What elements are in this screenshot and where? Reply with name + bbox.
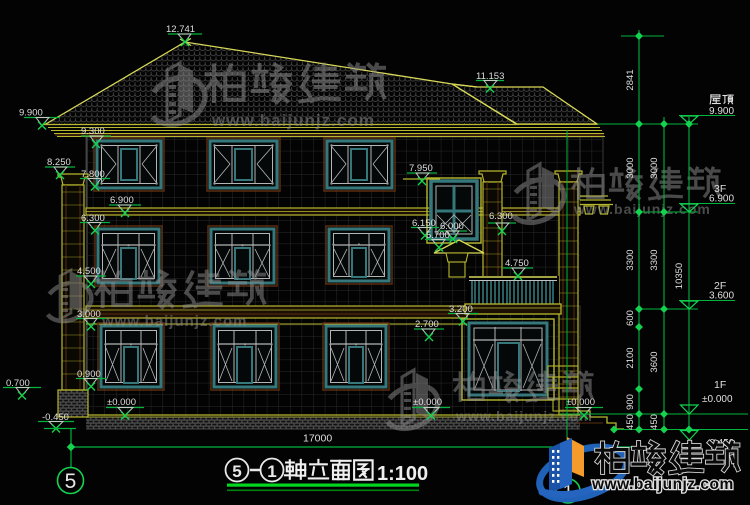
svg-text:1F: 1F xyxy=(714,379,726,391)
svg-text:6.300: 6.300 xyxy=(489,211,513,222)
svg-text:www.baijunjz.com: www.baijunjz.com xyxy=(211,111,375,130)
svg-text:2841: 2841 xyxy=(625,69,636,90)
svg-text:3300: 3300 xyxy=(649,249,660,270)
svg-text:2100: 2100 xyxy=(625,347,636,368)
svg-text:±0.000: ±0.000 xyxy=(702,394,733,405)
svg-text:www.baijunjz.com: www.baijunjz.com xyxy=(591,476,734,493)
svg-text:5: 5 xyxy=(232,462,241,481)
svg-text:3300: 3300 xyxy=(625,249,636,270)
svg-text:3000: 3000 xyxy=(649,157,660,178)
svg-text:1: 1 xyxy=(267,462,276,481)
svg-text:±0.000: ±0.000 xyxy=(107,397,136,408)
svg-text:±0.000: ±0.000 xyxy=(566,397,595,408)
svg-text:3000: 3000 xyxy=(625,157,636,178)
svg-text:450: 450 xyxy=(649,414,660,430)
svg-text:www.baijunjz.com: www.baijunjz.com xyxy=(455,408,593,424)
svg-text:6.900: 6.900 xyxy=(709,194,734,205)
svg-text:17000: 17000 xyxy=(303,433,332,445)
svg-text:3.600: 3.600 xyxy=(709,291,734,302)
svg-text:1:100: 1:100 xyxy=(377,463,428,485)
svg-text:10350: 10350 xyxy=(674,263,685,289)
svg-text:450: 450 xyxy=(625,414,636,430)
svg-text:900: 900 xyxy=(625,394,636,410)
svg-text:3600: 3600 xyxy=(649,351,660,372)
svg-text:www.baijunjz.com: www.baijunjz.com xyxy=(101,313,247,330)
svg-text:600: 600 xyxy=(625,310,636,326)
svg-text:±0.000: ±0.000 xyxy=(413,397,442,408)
svg-text:5: 5 xyxy=(65,470,77,493)
